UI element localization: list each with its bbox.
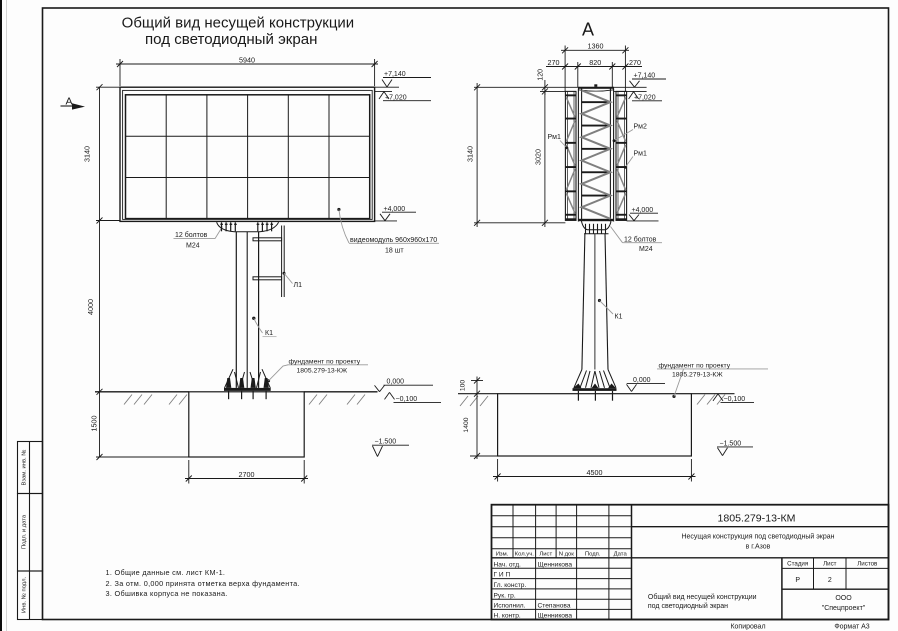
- svg-text:Гл. констр.: Гл. констр.: [494, 582, 527, 589]
- svg-text:+7,140: +7,140: [384, 71, 406, 78]
- svg-text:−0,100: −0,100: [724, 396, 746, 403]
- svg-text:К1: К1: [615, 314, 623, 321]
- svg-text:Нач. отд.: Нач. отд.: [494, 561, 522, 568]
- svg-text:Несущая конструкция под светод: Несущая конструкция под светодиодный экр…: [681, 532, 834, 540]
- svg-text:1400: 1400: [463, 417, 470, 432]
- svg-text:3020: 3020: [533, 149, 542, 165]
- svg-text:Лист: Лист: [539, 552, 552, 558]
- svg-text:А: А: [582, 20, 594, 40]
- svg-text:1805.279-13-КЖ: 1805.279-13-КЖ: [672, 371, 723, 378]
- svg-text:3140: 3140: [83, 146, 92, 162]
- svg-text:Л1: Л1: [294, 282, 303, 289]
- svg-text:4000: 4000: [86, 299, 95, 315]
- svg-text:Взам. инв. №: Взам. инв. №: [22, 450, 28, 486]
- svg-text:Исполнил.: Исполнил.: [494, 603, 526, 610]
- svg-text:Подп.: Подп.: [585, 552, 601, 558]
- svg-text:N док: N док: [559, 552, 575, 558]
- svg-text:−0,100: −0,100: [396, 396, 418, 403]
- svg-text:1360: 1360: [588, 42, 604, 51]
- svg-text:12 болтов: 12 болтов: [175, 231, 208, 239]
- svg-text:Подп. и дата: Подп. и дата: [22, 514, 28, 549]
- svg-text:100: 100: [460, 380, 467, 392]
- svg-text:5940: 5940: [239, 56, 255, 65]
- svg-text:под светодиодный экран: под светодиодный экран: [145, 32, 318, 48]
- svg-text:фундамент по проекту: фундамент по проекту: [289, 358, 361, 365]
- svg-text:2: 2: [828, 577, 832, 584]
- svg-text:в г.Азов: в г.Азов: [746, 543, 771, 550]
- svg-text:Лист: Лист: [823, 561, 837, 568]
- svg-text:820: 820: [589, 58, 601, 67]
- svg-text:Степанова: Степанова: [538, 603, 571, 610]
- svg-text:Копировал: Копировал: [730, 624, 765, 631]
- svg-text:под светодиодный экран: под светодиодный экран: [648, 602, 728, 610]
- svg-text:+7,020: +7,020: [634, 94, 656, 101]
- svg-text:Рм2: Рм2: [634, 124, 647, 131]
- svg-text:0,000: 0,000: [387, 379, 405, 386]
- svg-text:120: 120: [537, 69, 544, 81]
- svg-text:+7,020: +7,020: [385, 94, 407, 101]
- svg-text:"Спецпроект": "Спецпроект": [822, 605, 866, 612]
- svg-text:Рм1: Рм1: [634, 151, 647, 158]
- svg-text:−1.500: −1.500: [375, 439, 397, 446]
- svg-text:Инв. № подл.: Инв. № подл.: [22, 577, 28, 613]
- svg-text:Стадия: Стадия: [787, 561, 808, 568]
- svg-text:М24: М24: [639, 246, 653, 253]
- svg-text:4500: 4500: [587, 468, 603, 477]
- svg-text:Изм.: Изм.: [496, 552, 509, 558]
- svg-text:Щенникова: Щенникова: [538, 613, 573, 620]
- svg-text:Дата: Дата: [614, 552, 628, 558]
- svg-text:270: 270: [548, 58, 560, 67]
- svg-text:+4,000: +4,000: [632, 207, 654, 214]
- svg-text:1805.279-13-КЖ: 1805.279-13-КЖ: [297, 367, 348, 374]
- svg-text:−1.500: −1.500: [720, 440, 742, 447]
- svg-text:1. Общие данные см. лист КМ-1.: 1. Общие данные см. лист КМ-1.: [106, 568, 226, 577]
- svg-text:+7,140: +7,140: [634, 73, 656, 80]
- svg-text:Щенникова: Щенникова: [538, 561, 573, 568]
- svg-text:2. За отм. 0,000 принята отмет: 2. За отм. 0,000 принята отметка верха ф…: [106, 579, 300, 588]
- svg-text:1500: 1500: [90, 416, 99, 432]
- svg-text:Рук. гр.: Рук. гр.: [494, 592, 516, 599]
- svg-text:270: 270: [629, 58, 641, 67]
- svg-text:Общий вид несущей конструкции: Общий вид несущей конструкции: [122, 16, 355, 32]
- svg-text:3140: 3140: [466, 146, 475, 162]
- svg-text:Г И П: Г И П: [494, 572, 511, 579]
- svg-text:+4,000: +4,000: [384, 206, 406, 213]
- svg-text:Общий вид несущей конструкции: Общий вид несущей конструкции: [648, 593, 757, 601]
- svg-text:ООО: ООО: [835, 595, 852, 602]
- svg-text:2700: 2700: [239, 470, 255, 479]
- svg-text:видеомодуль 960х960х170: видеомодуль 960х960х170: [350, 237, 437, 244]
- svg-text:фундамент по проекту: фундамент по проекту: [659, 362, 731, 369]
- svg-text:Формат А3: Формат А3: [834, 624, 869, 631]
- svg-text:12 болтов: 12 болтов: [624, 235, 657, 243]
- svg-text:Рм1: Рм1: [548, 134, 561, 141]
- svg-text:Листов: Листов: [857, 561, 878, 568]
- svg-text:1805.279-13-КМ: 1805.279-13-КМ: [718, 513, 796, 525]
- svg-text:Н. контр.: Н. контр.: [494, 613, 521, 620]
- svg-text:Р: Р: [795, 577, 800, 584]
- svg-text:18 шт: 18 шт: [385, 248, 404, 255]
- svg-text:0,000: 0,000: [633, 377, 651, 384]
- svg-text:М24: М24: [186, 243, 200, 250]
- svg-text:К1: К1: [265, 330, 273, 337]
- svg-text:3. Обшивка корпуса не показана: 3. Обшивка корпуса не показана.: [106, 589, 228, 598]
- svg-text:Кол.уч.: Кол.уч.: [515, 552, 535, 558]
